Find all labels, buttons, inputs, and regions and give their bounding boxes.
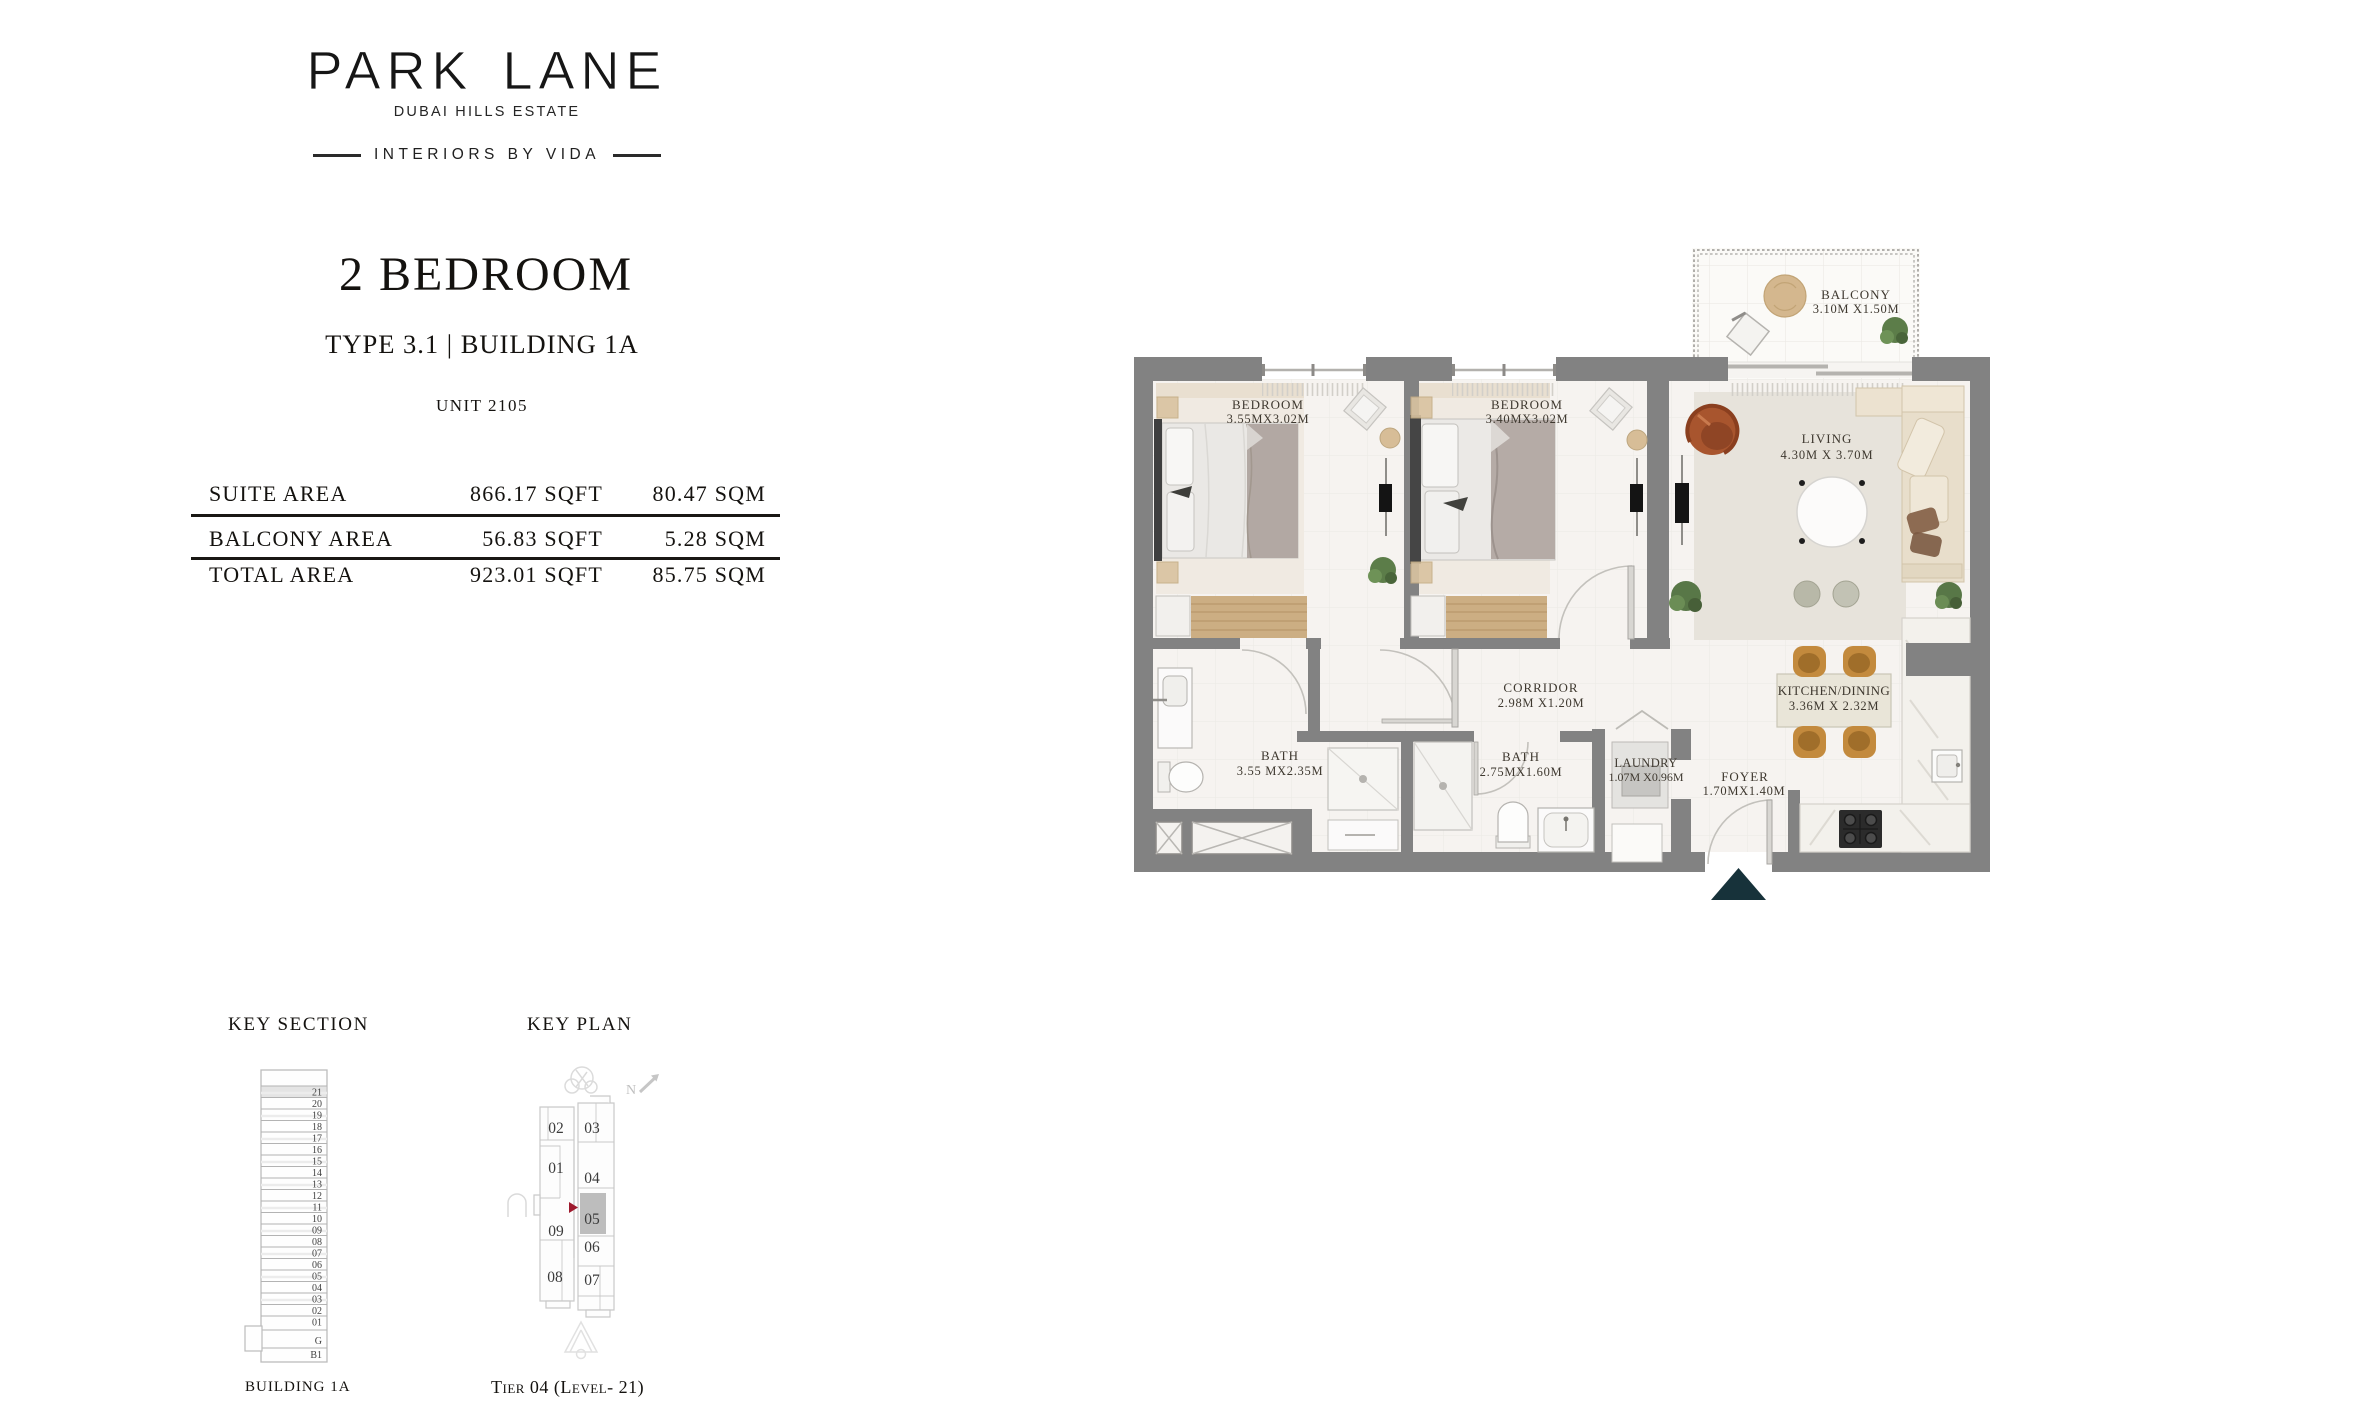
svg-text:09: 09 bbox=[312, 1226, 322, 1237]
svg-text:19: 19 bbox=[312, 1111, 322, 1122]
svg-text:08: 08 bbox=[312, 1237, 322, 1248]
svg-text:1.70MX1.40M: 1.70MX1.40M bbox=[1703, 784, 1786, 798]
svg-text:03: 03 bbox=[312, 1295, 322, 1306]
svg-text:04: 04 bbox=[312, 1283, 322, 1294]
svg-text:08: 08 bbox=[547, 1269, 563, 1286]
svg-text:10: 10 bbox=[312, 1214, 322, 1225]
svg-text:3.55MX3.02M: 3.55MX3.02M bbox=[1227, 412, 1310, 426]
svg-text:G: G bbox=[315, 1336, 322, 1347]
svg-text:LAUNDRY: LAUNDRY bbox=[1614, 756, 1677, 770]
svg-text:01: 01 bbox=[312, 1318, 322, 1329]
svg-text:12: 12 bbox=[312, 1191, 322, 1202]
svg-text:02: 02 bbox=[548, 1120, 564, 1137]
svg-text:BATH: BATH bbox=[1502, 749, 1540, 764]
svg-text:LIVING: LIVING bbox=[1802, 431, 1853, 446]
svg-text:06: 06 bbox=[584, 1239, 600, 1256]
svg-text:3.10M X1.50M: 3.10M X1.50M bbox=[1813, 302, 1900, 316]
svg-text:01: 01 bbox=[548, 1160, 564, 1177]
svg-text:04: 04 bbox=[584, 1170, 600, 1187]
svg-text:05: 05 bbox=[584, 1211, 600, 1228]
svg-text:BEDROOM: BEDROOM bbox=[1491, 397, 1563, 412]
svg-text:18: 18 bbox=[312, 1122, 322, 1133]
svg-text:3.55 MX2.35M: 3.55 MX2.35M bbox=[1237, 764, 1324, 778]
svg-text:2.75MX1.60M: 2.75MX1.60M bbox=[1480, 765, 1563, 779]
svg-text:B1: B1 bbox=[310, 1350, 322, 1361]
svg-text:21: 21 bbox=[312, 1088, 322, 1099]
svg-text:3.40MX3.02M: 3.40MX3.02M bbox=[1486, 412, 1569, 426]
svg-text:17: 17 bbox=[312, 1134, 322, 1145]
svg-text:09: 09 bbox=[548, 1223, 564, 1240]
svg-text:13: 13 bbox=[312, 1180, 322, 1191]
svg-text:BEDROOM: BEDROOM bbox=[1232, 397, 1304, 412]
svg-text:2.98M X1.20M: 2.98M X1.20M bbox=[1498, 696, 1585, 710]
svg-text:FOYER: FOYER bbox=[1721, 769, 1769, 784]
svg-text:02: 02 bbox=[312, 1306, 322, 1317]
svg-text:07: 07 bbox=[312, 1249, 322, 1260]
svg-text:15: 15 bbox=[312, 1157, 322, 1168]
svg-text:06: 06 bbox=[312, 1260, 322, 1271]
svg-text:20: 20 bbox=[312, 1099, 322, 1110]
svg-text:1.07M X0.96M: 1.07M X0.96M bbox=[1608, 770, 1683, 784]
svg-text:16: 16 bbox=[312, 1145, 322, 1156]
svg-text:4.30M X 3.70M: 4.30M X 3.70M bbox=[1781, 448, 1874, 462]
svg-text:CORRIDOR: CORRIDOR bbox=[1503, 680, 1578, 695]
svg-text:3.36M X 2.32M: 3.36M X 2.32M bbox=[1789, 699, 1879, 713]
svg-text:03: 03 bbox=[584, 1120, 600, 1137]
svg-text:N: N bbox=[626, 1083, 636, 1098]
svg-text:14: 14 bbox=[312, 1168, 322, 1179]
svg-text:07: 07 bbox=[584, 1272, 600, 1289]
svg-text:BATH: BATH bbox=[1261, 748, 1299, 763]
svg-text:BALCONY: BALCONY bbox=[1821, 287, 1891, 302]
svg-text:11: 11 bbox=[312, 1203, 322, 1214]
svg-text:KITCHEN/DINING: KITCHEN/DINING bbox=[1778, 683, 1890, 698]
svg-text:05: 05 bbox=[312, 1272, 322, 1283]
